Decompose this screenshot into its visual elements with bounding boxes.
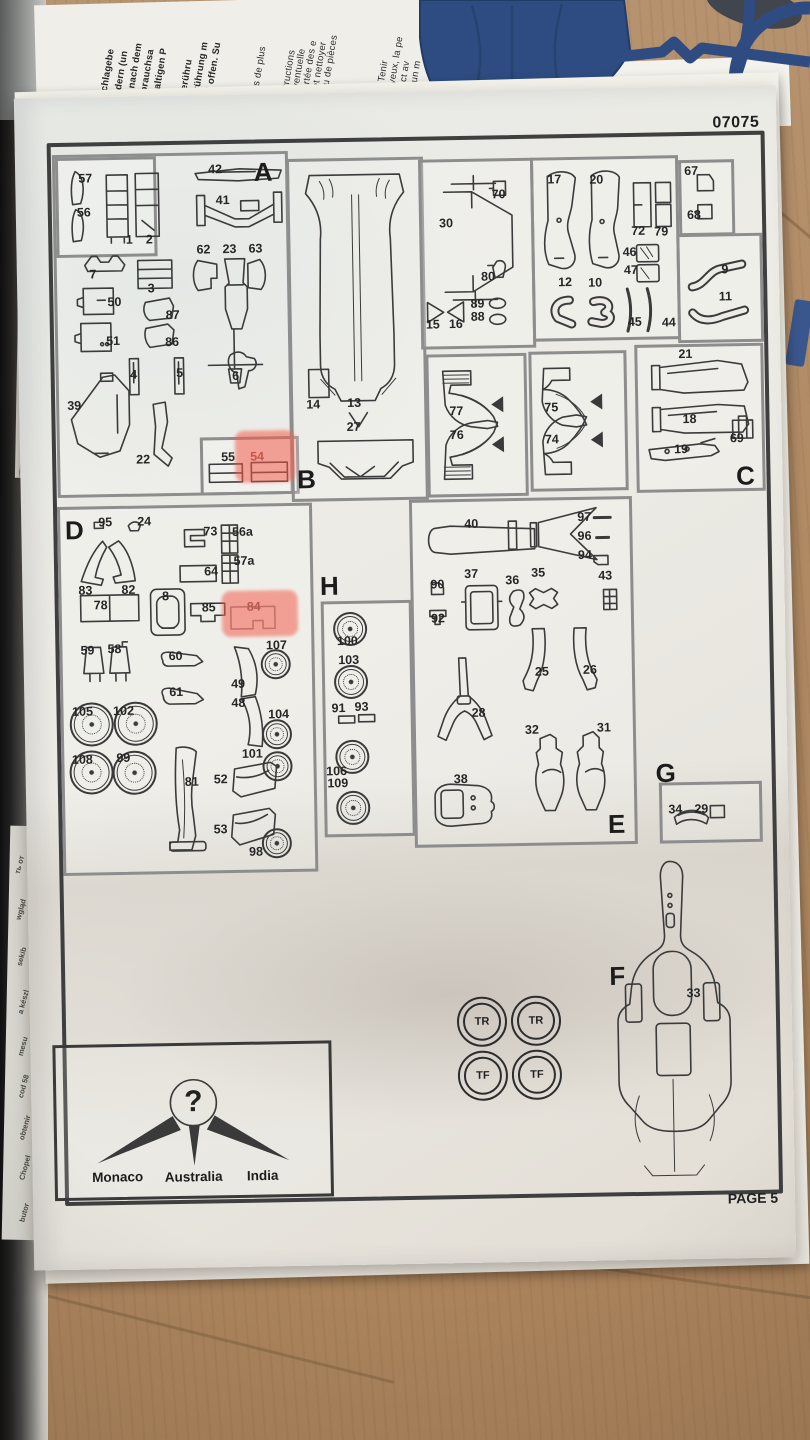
part-label-27: 27 (347, 420, 361, 434)
tire-label: TR (475, 1016, 490, 1028)
part-label-90: 90 (430, 577, 444, 591)
part-label-99: 99 (116, 751, 130, 765)
part-label-50: 50 (107, 295, 121, 309)
part-label-45: 45 (628, 315, 642, 329)
edge-fragment: sekib (15, 946, 29, 967)
edge-fragment: mesu (16, 1036, 30, 1057)
part-label-46: 46 (623, 245, 637, 259)
part-label-74: 74 (545, 432, 559, 446)
part-label-79: 79 (654, 224, 668, 238)
part-label-55: 55 (221, 450, 235, 464)
part-label-17: 17 (547, 172, 561, 186)
part-label-14: 14 (306, 397, 320, 411)
part-label-47: 47 (624, 263, 638, 277)
part-label-60: 60 (169, 649, 183, 663)
part-label-25: 25 (535, 664, 549, 678)
part-label-76: 76 (450, 428, 464, 442)
part-label-102: 102 (113, 704, 134, 718)
part-label-38: 38 (454, 772, 468, 786)
part-47-shape (637, 265, 659, 282)
part-label-8: 8 (162, 589, 169, 603)
sprue-box-7574 (528, 350, 628, 492)
part-label-103: 103 (338, 653, 359, 667)
part-25-shape (522, 629, 546, 691)
edge-fragment: wgląd (14, 898, 28, 921)
part-62-shape (193, 260, 217, 290)
part-32-shape (535, 734, 564, 810)
part-label-40: 40 (464, 517, 478, 531)
part-18-shape (652, 404, 748, 434)
part-label-61: 61 (169, 685, 183, 699)
markings-box: ? Monaco Australia India (52, 1040, 334, 1201)
part-label-85: 85 (202, 600, 216, 614)
part-label-5: 5 (176, 366, 183, 380)
part-label-48: 48 (231, 696, 245, 710)
sprue-box-7776 (425, 353, 528, 498)
part-67-shape (697, 175, 713, 191)
part-label-72: 72 (631, 224, 645, 238)
tire-label: TF (476, 1070, 490, 1082)
part-label-20: 20 (589, 172, 603, 186)
part-label-30: 30 (439, 216, 453, 230)
part-41-shape (197, 192, 283, 227)
part-label-96: 96 (577, 529, 591, 543)
part-label-4: 4 (130, 368, 137, 382)
part-3-shape (138, 260, 172, 289)
part-79-shape (655, 182, 671, 226)
part-10-shape (591, 300, 610, 323)
part-label-15: 15 (426, 317, 440, 331)
part-label-29: 29 (694, 802, 708, 816)
part-label-3: 3 (148, 281, 155, 295)
part-label-51: 51 (106, 334, 120, 348)
section-label-e: E (608, 809, 626, 840)
part-label-88: 88 (471, 310, 485, 324)
part-91-shape (339, 716, 355, 723)
part-9-shape (692, 264, 742, 287)
part-81-shape (168, 747, 206, 851)
part-label-57: 57 (78, 171, 92, 185)
pointer-middle (189, 1125, 201, 1166)
part-40-shape (428, 508, 597, 563)
part-label-9: 9 (721, 262, 728, 276)
part-44-shape (647, 289, 651, 331)
part-label-86: 86 (165, 335, 179, 349)
part-label-82: 82 (121, 583, 135, 597)
part-label-57a: 57a (233, 554, 254, 568)
part-93-shape (359, 715, 375, 722)
part-31-shape (576, 732, 605, 810)
part-label-78: 78 (94, 598, 108, 612)
section-label-c: C (736, 460, 755, 491)
part-72-shape (633, 183, 651, 227)
page-number: PAGE 5 (688, 1190, 778, 1208)
part-88-shape (490, 314, 506, 324)
sprue-box-e: E (409, 496, 638, 848)
part-82-shape (109, 541, 136, 583)
part-label-32: 32 (525, 723, 539, 737)
part-label-43: 43 (598, 568, 612, 582)
part-83-shape (81, 541, 108, 585)
part-43-shape (603, 589, 616, 609)
part-label-21: 21 (678, 347, 692, 361)
part-73-shape (184, 529, 204, 546)
part-label-81: 81 (185, 775, 199, 789)
part-label-92: 92 (431, 611, 445, 625)
part-label-64: 64 (204, 564, 218, 578)
part-label-18: 18 (682, 412, 696, 426)
part-46-shape (636, 245, 658, 262)
part-label-1: 1 (126, 233, 133, 247)
country-india: India (247, 1168, 279, 1184)
part-35-shape (529, 588, 557, 608)
tire-label: TF (530, 1069, 544, 1081)
part-label-75: 75 (544, 400, 558, 414)
part-label-37: 37 (464, 567, 478, 581)
part-28-shape (437, 658, 492, 741)
part-label-39: 39 (67, 399, 81, 413)
part-37-shape (461, 585, 502, 630)
pointer-left (97, 1116, 182, 1163)
part-75-shape (542, 368, 603, 428)
part-label-35: 35 (531, 566, 545, 580)
edge-fragment: cod 58 (16, 1074, 31, 1099)
part-label-70: 70 (491, 187, 505, 201)
part-label-52: 52 (214, 772, 228, 786)
wood-plank-seam (0, 1279, 394, 1384)
part-2-shape (135, 173, 159, 236)
part-label-53: 53 (214, 822, 228, 836)
part-label-107: 107 (266, 638, 287, 652)
pointer-right (207, 1114, 290, 1161)
part-label-26: 26 (583, 663, 597, 677)
part-label-98: 98 (249, 845, 263, 859)
photo-of-instruction-page: { "kit_number": "07075", "page_label": "… (0, 0, 810, 1440)
sprue-box-d: D (57, 503, 318, 876)
edge-fragment: butor (17, 1202, 31, 1223)
part-label-101: 101 (242, 746, 263, 760)
part-label-56: 56 (77, 205, 91, 219)
part-21-shape (652, 360, 749, 394)
part-label-108: 108 (72, 752, 93, 766)
part-label-33: 33 (686, 986, 700, 1000)
part-label-2: 2 (146, 232, 153, 246)
sprue-box-c: C (634, 343, 766, 493)
part-13-shape (305, 174, 407, 428)
part-11-shape (693, 310, 745, 320)
instruction-page: 07075 (14, 85, 796, 1270)
part-label-109: 109 (327, 776, 348, 790)
part-label-56a: 56a (232, 525, 253, 539)
part-label-104: 104 (268, 707, 289, 721)
section-label-b: B (297, 464, 316, 495)
part-label-93: 93 (354, 700, 368, 714)
part-label-83: 83 (78, 583, 92, 597)
part-33-shape (587, 854, 763, 1187)
sprue-box-b: B (286, 157, 429, 502)
part-label-10: 10 (588, 276, 602, 290)
section-label-d: D (65, 515, 84, 546)
edge-fragment: Chopel (17, 1154, 32, 1181)
part-label-97: 97 (577, 510, 591, 524)
part-36-shape (509, 590, 524, 626)
country-monaco: Monaco (92, 1169, 143, 1185)
section-label-g: G (655, 758, 676, 789)
part-label-69: 69 (730, 431, 744, 445)
part-label-12: 12 (558, 275, 572, 289)
blue-part-edge (785, 299, 810, 367)
country-australia: Australia (165, 1169, 223, 1185)
part-12-shape (555, 300, 572, 324)
part-22-shape (153, 402, 172, 466)
part-27-shape (318, 440, 414, 480)
part-label-7: 7 (89, 267, 96, 281)
tire-label: TR (529, 1015, 544, 1027)
edge-fragment: obtenir (17, 1114, 32, 1141)
highlight-part-54 (235, 430, 296, 483)
part-label-36: 36 (505, 573, 519, 587)
part-77-shape (443, 370, 504, 429)
part-label-68: 68 (687, 208, 701, 222)
part-39-shape (71, 373, 130, 458)
part-label-24: 24 (137, 514, 151, 528)
part-label-95: 95 (98, 515, 112, 529)
part-label-11: 11 (719, 289, 732, 303)
part-label-94: 94 (578, 548, 592, 562)
part-label-67: 67 (684, 164, 698, 178)
question-mark: ? (184, 1085, 203, 1119)
part-label-22: 22 (136, 452, 150, 466)
part-label-31: 31 (597, 720, 611, 734)
edge-fragment: ть от (13, 855, 27, 875)
part-label-87: 87 (166, 308, 180, 322)
part-label-13: 13 (347, 396, 361, 410)
part-label-80: 80 (481, 269, 495, 283)
part-label-34: 34 (668, 802, 682, 816)
part-label-16: 16 (449, 317, 463, 331)
part-label-19: 19 (674, 442, 688, 456)
part-label-28: 28 (472, 706, 486, 720)
part-label-62: 62 (196, 242, 210, 256)
part-label-73: 73 (203, 524, 217, 538)
section-label-h: H (320, 571, 339, 602)
part-label-41: 41 (216, 193, 230, 207)
part-label-49: 49 (231, 677, 245, 691)
part-29-shape (710, 805, 724, 817)
part-78-shape (81, 595, 139, 622)
part-26-shape (573, 628, 597, 690)
part-label-105: 105 (72, 704, 93, 718)
section-label-f: F (609, 961, 625, 992)
part-label-91: 91 (331, 701, 345, 715)
part-label-59: 59 (80, 643, 94, 657)
part-23-shape (207, 258, 263, 383)
part-label-42: 42 (208, 162, 222, 176)
part-label-44: 44 (662, 315, 676, 329)
highlight-part-84 (221, 590, 298, 637)
part-38-shape (435, 783, 495, 826)
part-label-63: 63 (248, 241, 262, 255)
section-label-a: A (253, 157, 272, 188)
sprue-box-911 (676, 233, 764, 343)
part-63-shape (248, 259, 266, 289)
part-label-23: 23 (222, 242, 236, 256)
part-label-58: 58 (107, 642, 121, 656)
part-label-77: 77 (449, 404, 463, 418)
part-label-6: 6 (232, 369, 239, 383)
part-label-100: 100 (337, 634, 358, 648)
